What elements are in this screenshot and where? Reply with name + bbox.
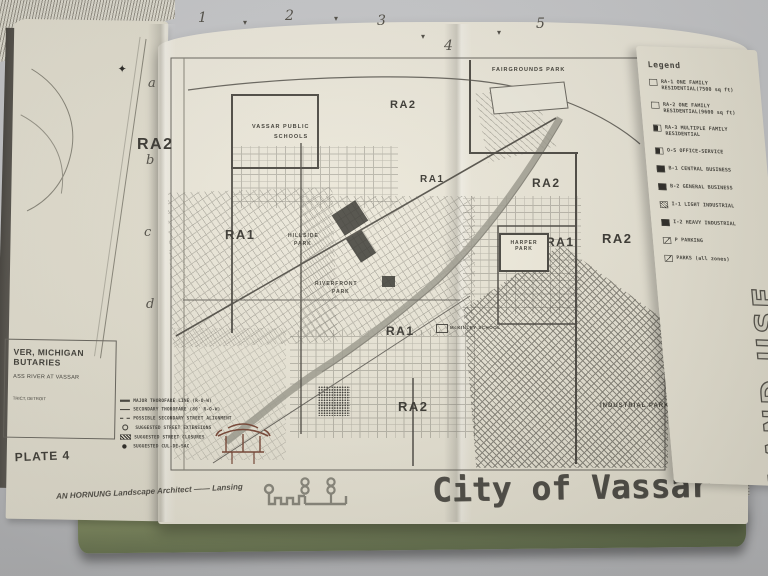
- zone-swatch: [658, 183, 667, 190]
- legend-label: I-2 HEAVY INDUSTRIAL: [673, 219, 736, 229]
- hillside-park-label: PARK: [294, 241, 312, 247]
- school-symbol: [436, 324, 448, 333]
- harper-park-box: HARPER PARK: [499, 233, 549, 272]
- zone-swatch: [660, 201, 669, 208]
- legend-label: PARKS (all zones): [676, 255, 730, 264]
- compass-icon: ✦: [117, 63, 126, 76]
- secondary-thorofare-line-icon: [120, 409, 130, 410]
- zone-swatch: [664, 255, 673, 262]
- fairgrounds-park-label: FAIRGROUNDS PARK: [492, 67, 565, 73]
- legend-item: B-1 CENTRAL BUSINESS: [656, 165, 762, 176]
- harper-park-label: PARK: [501, 246, 547, 252]
- map-title: City of Vassar: [432, 466, 711, 510]
- industrial-park-label: INDUSTRIAL PARK: [600, 403, 669, 409]
- caption-line-3: ASS RIVER AT VASSAR: [13, 374, 109, 382]
- legend-item: O-S OFFICE-SERVICE: [655, 147, 761, 158]
- zone-label: RA2: [532, 176, 561, 190]
- grid-number-3: 3: [377, 13, 386, 29]
- key-label: SUGGESTED STREET CLOSURES: [134, 435, 204, 440]
- legend-item: P PARKING: [663, 236, 768, 247]
- grid-letter-c: c: [144, 225, 151, 240]
- legend-item: B-2 GENERAL BUSINESS: [658, 183, 764, 194]
- legend-label: P PARKING: [675, 237, 704, 245]
- key-item: SECONDARY THOROFARE (80' R-O-W): [120, 407, 285, 412]
- pagoda-ornament: [212, 418, 274, 476]
- zone-label: RA2: [137, 136, 174, 154]
- legend-item: RA-3 MULTIPLE FAMILY RESIDENTIAL: [653, 124, 759, 140]
- zone-label: RA1: [546, 235, 575, 249]
- school-label: McKINLEY SCHOOL: [450, 325, 500, 330]
- zone-label: RA1: [420, 174, 445, 185]
- grid-letter-b: b: [146, 153, 154, 168]
- legend-item: RA-1 ONE FAMILY RESIDENTIAL(7500 sq ft): [649, 78, 755, 94]
- legend-item: I-2 HEAVY INDUSTRIAL: [661, 218, 767, 229]
- zone-swatch: [663, 237, 672, 244]
- legend-label: B-1 CENTRAL BUSINESS: [668, 165, 731, 175]
- legend-label: RA-2 ONE FAMILY RESIDENTIAL(9600 sq ft): [663, 101, 757, 117]
- legend-label: O-S OFFICE-SERVICE: [667, 147, 724, 156]
- caption-line-4: TRICT, DETROIT: [13, 396, 104, 402]
- grid-tick-icon: ▾: [421, 32, 425, 41]
- vassar-public-schools-label: VASSAR PUBLIC: [252, 124, 310, 130]
- key-item: MAJOR THOROFARE LINE (R-O-W): [120, 398, 285, 403]
- zone-swatch: [651, 102, 660, 109]
- legend-item: PARKS (all zones): [664, 254, 768, 265]
- grid-letter-a: a: [148, 76, 156, 91]
- left-page-caption-box: VER, MICHIGAN BUTARIES ASS RIVER AT VASS…: [3, 339, 117, 440]
- riverfront-park-label: PARK: [332, 289, 350, 295]
- grid-tick-icon: ▾: [497, 28, 501, 37]
- zone-swatch: [655, 147, 664, 154]
- zone-swatch: [656, 165, 665, 172]
- legend-label: RA-3 MULTIPLE FAMILY RESIDENTIAL: [665, 124, 759, 140]
- grid-tick-icon: ▾: [243, 18, 247, 27]
- hillside-park-label: HILLSIDE: [288, 233, 319, 239]
- legend-item: I-1 LIGHT INDUSTRIAL: [660, 201, 766, 212]
- legend-item: RA-2 ONE FAMILY RESIDENTIAL(9600 sq ft): [651, 101, 757, 117]
- grid-number-5: 5: [536, 16, 545, 32]
- zone-label: RA2: [390, 99, 417, 111]
- legend-label: B-2 GENERAL BUSINESS: [670, 183, 733, 193]
- circle-icon: [122, 424, 128, 430]
- key-label: SUGGESTED CUL-DE-SAC: [133, 444, 189, 449]
- zone-label: RA2: [398, 399, 429, 414]
- key-label: MAJOR THOROFARE LINE (R-O-W): [133, 398, 212, 403]
- zone-label: RA2: [602, 231, 633, 246]
- legend-label: RA-1 ONE FAMILY RESIDENTIAL(7500 sq ft): [661, 79, 755, 95]
- filled-circle-icon: [122, 444, 126, 448]
- zone-label: RA1: [225, 227, 256, 242]
- caption-line-2: BUTARIES: [13, 357, 109, 369]
- grid-number-2: 2: [285, 8, 294, 24]
- land-use-side-label: LAND USE: [745, 274, 768, 484]
- hatched-box-icon: [120, 434, 131, 440]
- plate-label: PLATE 4: [15, 448, 71, 464]
- legend-title: Legend: [647, 60, 753, 73]
- grid-number-4: 4: [444, 38, 453, 54]
- grid-tick-icon: ▾: [334, 14, 338, 23]
- dashed-line-icon: [120, 418, 130, 419]
- riverfront-park-label: RIVERFRONT: [315, 281, 358, 287]
- vassar-public-schools-label: SCHOOLS: [274, 134, 308, 140]
- key-label: SECONDARY THOROFARE (80' R-O-W): [133, 407, 220, 412]
- key-label: SUGGESTED STREET EXTENSIONS: [135, 425, 211, 430]
- grid-letter-d: d: [146, 297, 154, 312]
- zone-swatch: [661, 219, 670, 226]
- grid-number-1: 1: [198, 10, 207, 26]
- book-photo: ✦ VER, MICHIGAN BUTARIES ASS RIVER AT VA…: [0, 0, 768, 576]
- legend: Legend RA-1 ONE FAMILY RESIDENTIAL(7500 …: [647, 60, 768, 276]
- zone-label: RA1: [386, 324, 415, 338]
- scale-bar: [258, 474, 358, 520]
- legend-label: I-1 LIGHT INDUSTRIAL: [671, 201, 734, 211]
- left-page-map-fragment: [14, 25, 162, 377]
- major-thorofare-line-icon: [120, 399, 130, 401]
- zone-swatch: [653, 125, 662, 132]
- zone-swatch: [649, 79, 658, 86]
